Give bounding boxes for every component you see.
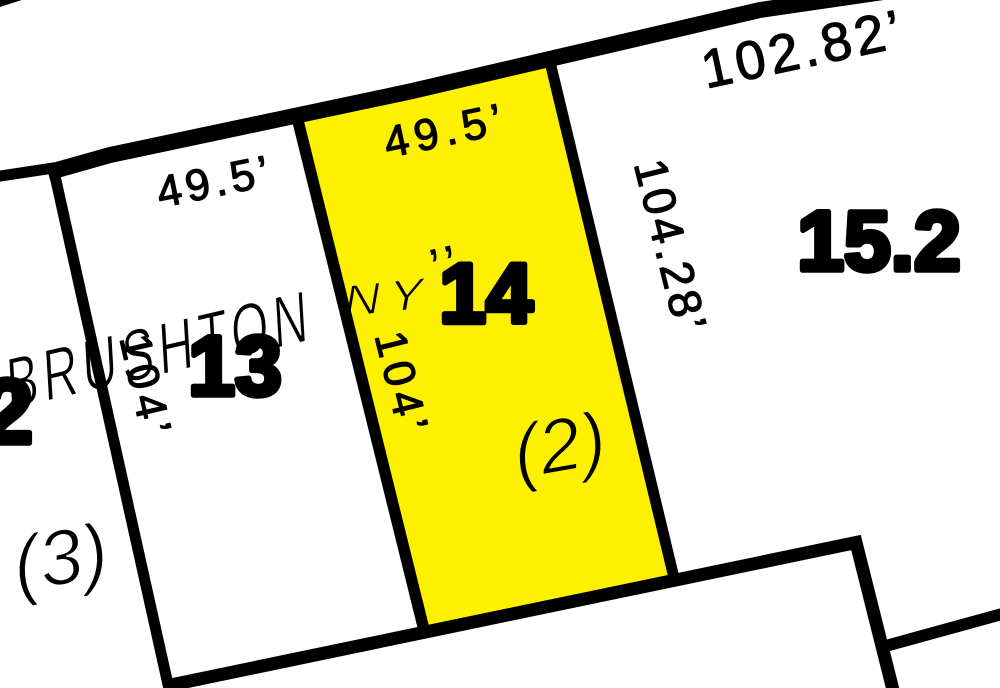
svg-text:(2): (2) [506, 396, 612, 496]
svg-text:(3): (3) [6, 506, 115, 609]
svg-text:14: 14 [439, 247, 533, 341]
svg-text:15.2: 15.2 [797, 194, 961, 288]
svg-text:NY: NY [340, 268, 437, 328]
svg-text:2: 2 [0, 361, 33, 463]
svg-text:13: 13 [188, 319, 281, 413]
